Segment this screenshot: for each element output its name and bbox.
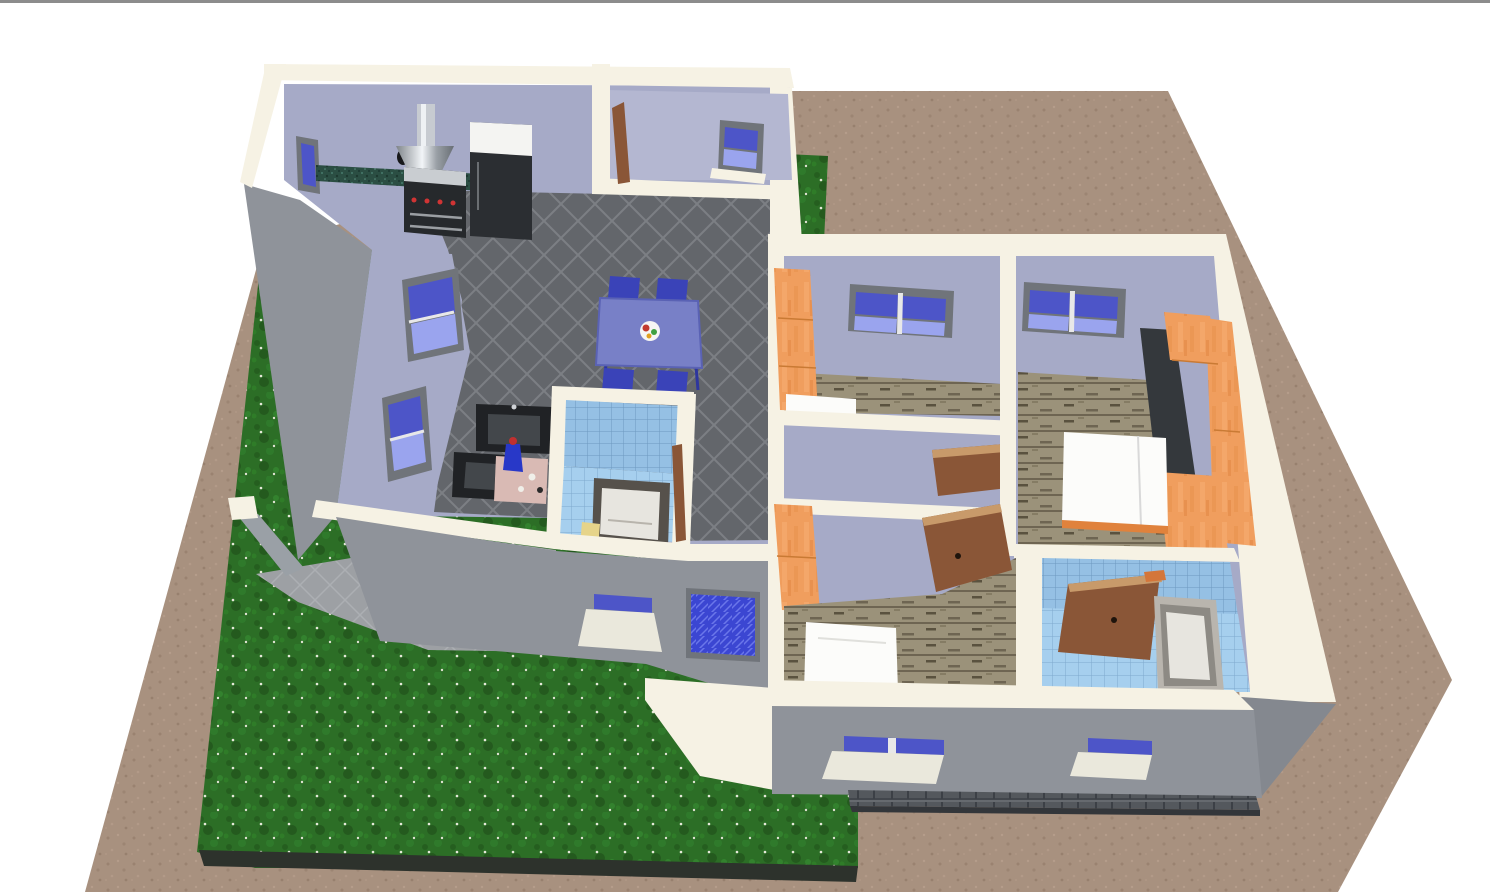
bathtub-basin <box>1166 612 1210 680</box>
bathtub-center-basin <box>600 488 660 540</box>
table-item <box>537 487 543 493</box>
scene-root <box>0 0 1490 892</box>
bathroom-door-bar <box>1144 570 1166 582</box>
door-handle <box>1111 617 1117 623</box>
bedroom2-bed[interactable] <box>1062 432 1168 528</box>
bedroom1-window-pane <box>902 296 946 321</box>
floorplan-3d-render <box>0 0 1490 892</box>
trim-bed3-bath <box>1016 556 1042 692</box>
south-window-2-glass <box>691 594 755 656</box>
window-mullion <box>897 293 903 334</box>
plate-food <box>643 325 650 332</box>
window-mullion <box>1069 291 1075 332</box>
bedroom2-window-pane <box>1074 294 1118 319</box>
bedroom1-window-pane <box>855 292 898 317</box>
rightwing-north-trim <box>768 234 1226 256</box>
bath-center-wall-tiles <box>564 400 682 474</box>
bedroom2-window-pane <box>1029 290 1070 315</box>
small-room-west-trim <box>592 64 610 194</box>
kitchen-west-window-pane <box>301 143 316 187</box>
armchair-seat <box>464 462 496 490</box>
trim-bed1-bed2 <box>1000 256 1016 556</box>
door-handle <box>955 553 961 559</box>
bedroom1-window-pane <box>854 316 897 333</box>
dining-table-leg <box>696 366 698 390</box>
garden-post-top <box>228 496 258 520</box>
table-cup <box>518 486 524 492</box>
dining-chair[interactable] <box>608 276 640 300</box>
frame-top-line <box>0 0 1490 3</box>
small-room-floor <box>606 90 792 180</box>
fridge-top <box>470 122 532 156</box>
plate-food <box>651 329 657 335</box>
small-room-window-pane-top <box>724 127 758 151</box>
stove-knob <box>451 201 456 206</box>
floorplan-3d-viewport[interactable] <box>0 0 1490 892</box>
bedroom2-window-pane <box>1028 314 1069 331</box>
dining-chair[interactable] <box>656 278 688 302</box>
sofa-button <box>512 405 517 410</box>
front-window-2-sill <box>1070 752 1152 780</box>
leftwing-west-trim <box>240 64 286 188</box>
stove-knob <box>425 199 430 204</box>
stove-knob <box>438 200 443 205</box>
stove-knob <box>412 198 417 203</box>
plate-food <box>647 334 652 339</box>
decor-figure[interactable] <box>503 444 523 472</box>
table-cup <box>529 474 536 481</box>
south-window-1-sill <box>578 609 662 652</box>
front-window-1-divider <box>888 738 896 754</box>
decor-figure-top <box>509 437 517 445</box>
range-hood-duct-highlight <box>421 104 426 152</box>
front-window-1-sill <box>822 751 944 784</box>
